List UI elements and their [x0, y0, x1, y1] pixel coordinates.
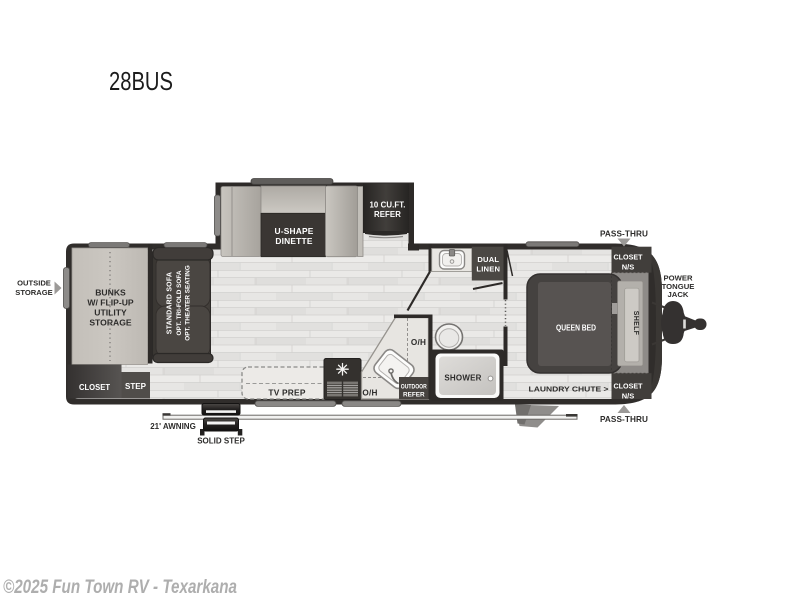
svg-text:SOLID STEP: SOLID STEP: [197, 437, 245, 446]
svg-text:TV PREP: TV PREP: [268, 388, 305, 398]
svg-text:SHELF: SHELF: [632, 311, 639, 336]
svg-text:DUAL: DUAL: [477, 255, 499, 264]
svg-text:STANDARD SOFA: STANDARD SOFA: [167, 272, 174, 334]
svg-text:W/ FLIP-UP: W/ FLIP-UP: [87, 298, 134, 308]
svg-text:STORAGE: STORAGE: [89, 318, 132, 328]
svg-text:N/S: N/S: [622, 262, 635, 271]
svg-text:REFER: REFER: [403, 392, 425, 399]
svg-text:BUNKS: BUNKS: [95, 288, 126, 298]
svg-text:DINETTE: DINETTE: [275, 236, 312, 246]
svg-text:UTILITY: UTILITY: [94, 308, 127, 318]
svg-text:PASS-THRU: PASS-THRU: [600, 230, 648, 239]
svg-text:CLOSET: CLOSET: [614, 253, 643, 262]
svg-text:©2025 Fun Town RV - Texarkana: ©2025 Fun Town RV - Texarkana: [3, 576, 237, 598]
svg-text:LAUNDRY CHUTE >: LAUNDRY CHUTE >: [529, 385, 610, 394]
svg-text:28BUS: 28BUS: [109, 66, 173, 96]
svg-text:CLOSET: CLOSET: [614, 382, 643, 391]
svg-text:O/H: O/H: [411, 338, 426, 347]
svg-text:U-SHAPE: U-SHAPE: [274, 226, 313, 236]
svg-text:OPT. THEATER SEATING: OPT. THEATER SEATING: [185, 265, 192, 340]
svg-text:PASS-THRU: PASS-THRU: [600, 415, 648, 424]
svg-text:OUTDOOR: OUTDOOR: [401, 383, 427, 390]
svg-text:N/S: N/S: [622, 391, 635, 400]
svg-text:21' AWNING: 21' AWNING: [150, 422, 196, 431]
svg-text:OUTSIDE: OUTSIDE: [17, 279, 51, 288]
svg-text:JACK: JACK: [668, 290, 689, 299]
svg-text:SHOWER: SHOWER: [444, 374, 481, 383]
svg-text:STORAGE: STORAGE: [15, 288, 52, 297]
svg-text:O/H: O/H: [362, 389, 377, 398]
svg-text:REFER: REFER: [374, 210, 401, 219]
svg-text:10 CU.FT.: 10 CU.FT.: [370, 201, 406, 210]
svg-text:OPT. TRI-FOLD SOFA: OPT. TRI-FOLD SOFA: [176, 270, 183, 335]
svg-text:STEP: STEP: [125, 382, 147, 391]
svg-text:CLOSET: CLOSET: [79, 383, 110, 392]
svg-text:LINEN: LINEN: [476, 264, 500, 273]
svg-text:QUEEN BED: QUEEN BED: [556, 324, 596, 333]
